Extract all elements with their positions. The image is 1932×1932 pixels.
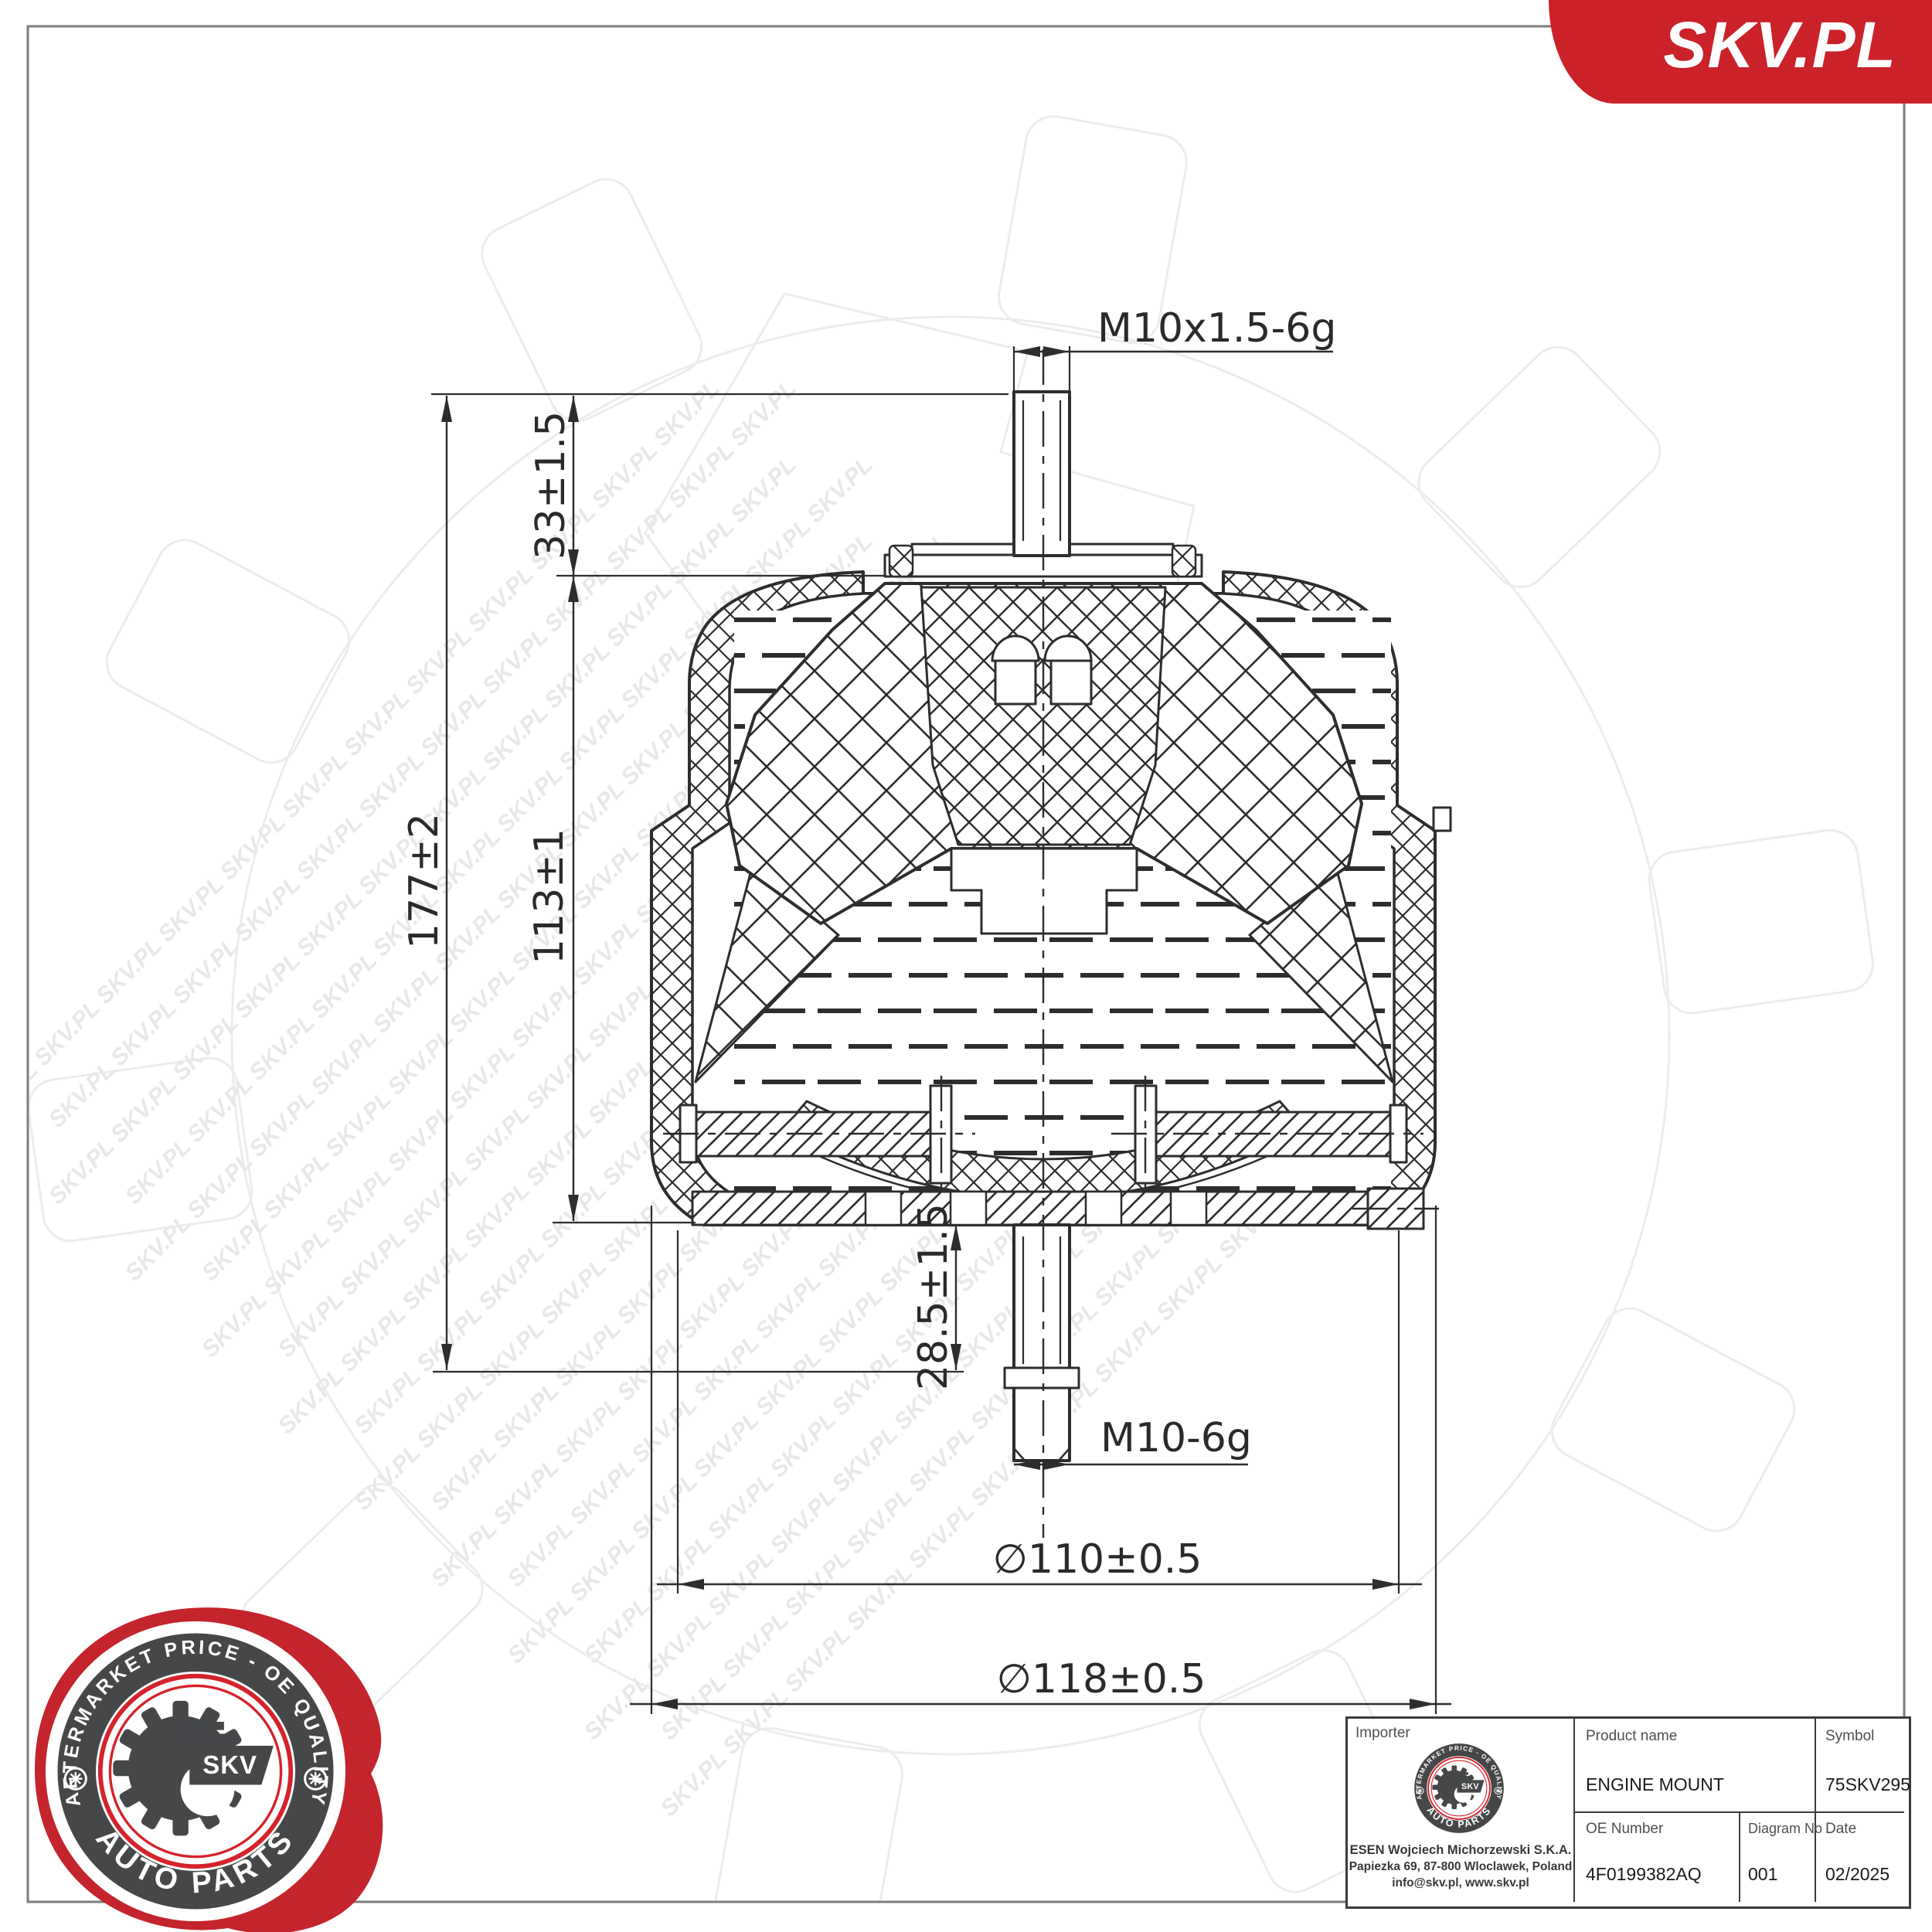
dim-upper: 33±1.5	[528, 411, 574, 560]
divider	[1573, 1719, 1575, 1902]
divider	[1739, 1811, 1740, 1902]
importer-street: Papiezka 69, 87-800 Wloclawek, Poland	[1348, 1859, 1573, 1875]
oe-value: 4F0199382AQ	[1586, 1864, 1702, 1885]
dim-lower-stud: 28.5±1.5	[910, 1203, 957, 1390]
importer-company: ESEN Wojciech Michorzewski S.K.A.	[1348, 1842, 1573, 1859]
importer-address: ESEN Wojciech Michorzewski S.K.A. Papiez…	[1348, 1842, 1573, 1891]
brand-banner: SKV.PL	[1549, 0, 1932, 104]
importer-label: Importer	[1355, 1725, 1410, 1742]
divider	[1815, 1719, 1816, 1902]
diagram-value: 001	[1748, 1864, 1777, 1885]
date-value: 02/2025	[1825, 1864, 1889, 1885]
dim-dia-inner: ∅110±0.5	[993, 1536, 1202, 1583]
dim-total-height: 177±2	[401, 813, 447, 949]
diagram-label: Diagram No	[1748, 1821, 1822, 1837]
dim-body: 113±1	[526, 828, 573, 964]
importer-contact: info@skv.pl, www.skv.pl	[1348, 1875, 1573, 1891]
top-stud	[1014, 392, 1070, 556]
product-value: ENGINE MOUNT	[1586, 1774, 1724, 1795]
titleblock: Importer ESEN Wojciech Michorzewski S.K.…	[1345, 1716, 1911, 1909]
symbol-label: Symbol	[1825, 1728, 1874, 1745]
brand-logo-text: SKV.PL	[1663, 8, 1896, 83]
dim-thread-top: M10x1.5-6g	[1097, 305, 1336, 352]
importer-logo	[1408, 1737, 1510, 1843]
symbol-value: 75SKV295	[1825, 1774, 1910, 1795]
engine-mount-drawing: AFTERMARKET PRICE - OE QUALITY AUTO PART…	[0, 0, 1932, 1932]
oe-label: OE Number	[1586, 1821, 1663, 1838]
dim-thread-bottom: M10-6g	[1100, 1415, 1252, 1461]
dim-dia-outer: ∅118±0.5	[997, 1656, 1206, 1702]
bottom-stud	[1014, 1225, 1070, 1461]
product-label: Product name	[1586, 1728, 1677, 1745]
page: AFTERMARKET PRICE - OE QUALITY AUTO PART…	[0, 0, 1932, 1932]
date-label: Date	[1825, 1821, 1856, 1838]
mount-cross-section	[651, 349, 1451, 1538]
